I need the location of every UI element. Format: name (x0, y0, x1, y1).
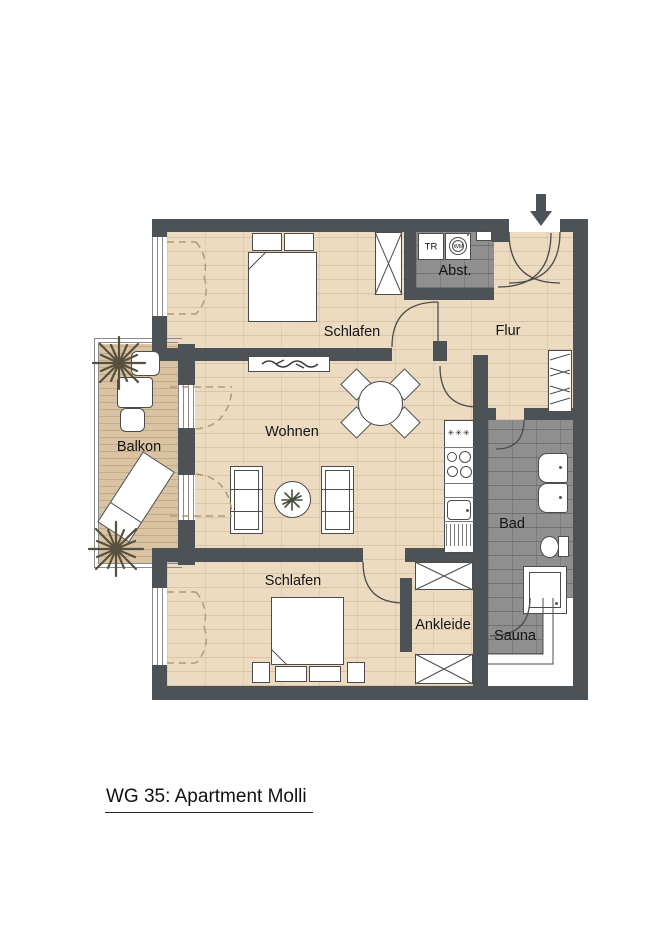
drainboard (446, 524, 472, 546)
balcony-chair (131, 351, 160, 376)
sofa-cushion-line (231, 489, 262, 490)
wall (152, 548, 363, 562)
counter-divider (444, 447, 474, 448)
wall (152, 219, 492, 232)
storage-shelf (476, 231, 492, 241)
room-label-bad: Bad (499, 516, 525, 532)
window (152, 588, 167, 665)
washbasin (538, 483, 568, 513)
toilet-bowl (540, 536, 559, 558)
basin-drain-dot (559, 496, 562, 499)
balcony-table (117, 377, 153, 408)
room-label-ankleide: Ankleide (415, 617, 471, 633)
plan-title: WG 35: Apartment Molli (105, 786, 313, 813)
hob-symbols: ✳✳✳ (447, 429, 470, 438)
lounger-divider (111, 502, 142, 522)
room-label-sauna: Sauna (494, 628, 536, 644)
wall (433, 341, 447, 361)
wardrobe (415, 562, 473, 590)
wall (400, 578, 412, 652)
room-label-schlafen-top: Schlafen (324, 324, 380, 340)
sofa-frame (325, 470, 350, 530)
washer-label: WM (454, 244, 464, 250)
sofa (230, 466, 263, 534)
sofa-cushion-line (322, 511, 353, 512)
washer-indicator-dot (467, 234, 469, 236)
coffee-table (274, 481, 311, 518)
pillow (284, 233, 314, 251)
balcony-chair (120, 408, 145, 432)
wall (152, 686, 588, 700)
room-label-wohnen: Wohnen (265, 424, 319, 440)
stove-burner-icon (460, 466, 472, 478)
wall (178, 344, 195, 565)
sauna-bench-bottom (488, 654, 573, 686)
wardrobe (415, 654, 473, 684)
dining-table (358, 381, 403, 426)
pillow (252, 233, 282, 251)
counter-divider (444, 497, 474, 498)
room-label-balkon: Balkon (117, 439, 161, 455)
sofa (321, 466, 354, 534)
room-label-abstellraum: Abst. (438, 263, 471, 279)
entrance-arrow-head-icon (530, 211, 552, 226)
sofa-cushion-line (231, 511, 262, 512)
counter-divider (444, 483, 474, 484)
bed (271, 597, 344, 665)
counter-divider (444, 521, 474, 522)
room-label-schlafen-bottom: Schlafen (265, 573, 321, 589)
wall (492, 219, 509, 242)
balcony-door-lower (178, 475, 195, 520)
washbasin (538, 453, 568, 483)
pillow (309, 666, 341, 682)
wall (488, 408, 496, 420)
sofa-cushion-line (322, 489, 353, 490)
coat-rack (548, 350, 572, 412)
wall (473, 355, 488, 686)
stove-burner-icon (447, 466, 458, 477)
stove-burner-icon (459, 451, 471, 463)
stove-burner-icon (447, 452, 457, 462)
pillow (275, 666, 307, 682)
kitchen-tap-dot (466, 509, 469, 512)
window (152, 237, 167, 316)
nightstand (347, 662, 365, 683)
wardrobe (375, 232, 402, 295)
nightstand (252, 662, 270, 683)
balcony-door-upper (178, 385, 195, 428)
bed (248, 252, 317, 322)
entrance-arrow-icon (536, 194, 546, 212)
floor-plan: TR WM ✳✳✳ (0, 0, 670, 950)
wall (573, 219, 588, 700)
dryer-label: TR (425, 242, 438, 253)
sofa-frame (234, 470, 259, 530)
room-label-flur: Flur (496, 323, 521, 339)
shower-drain-dot (555, 602, 558, 605)
basin-drain-dot (559, 466, 562, 469)
sideboard (248, 356, 330, 372)
toilet-tank (558, 536, 569, 557)
wall (404, 288, 494, 300)
